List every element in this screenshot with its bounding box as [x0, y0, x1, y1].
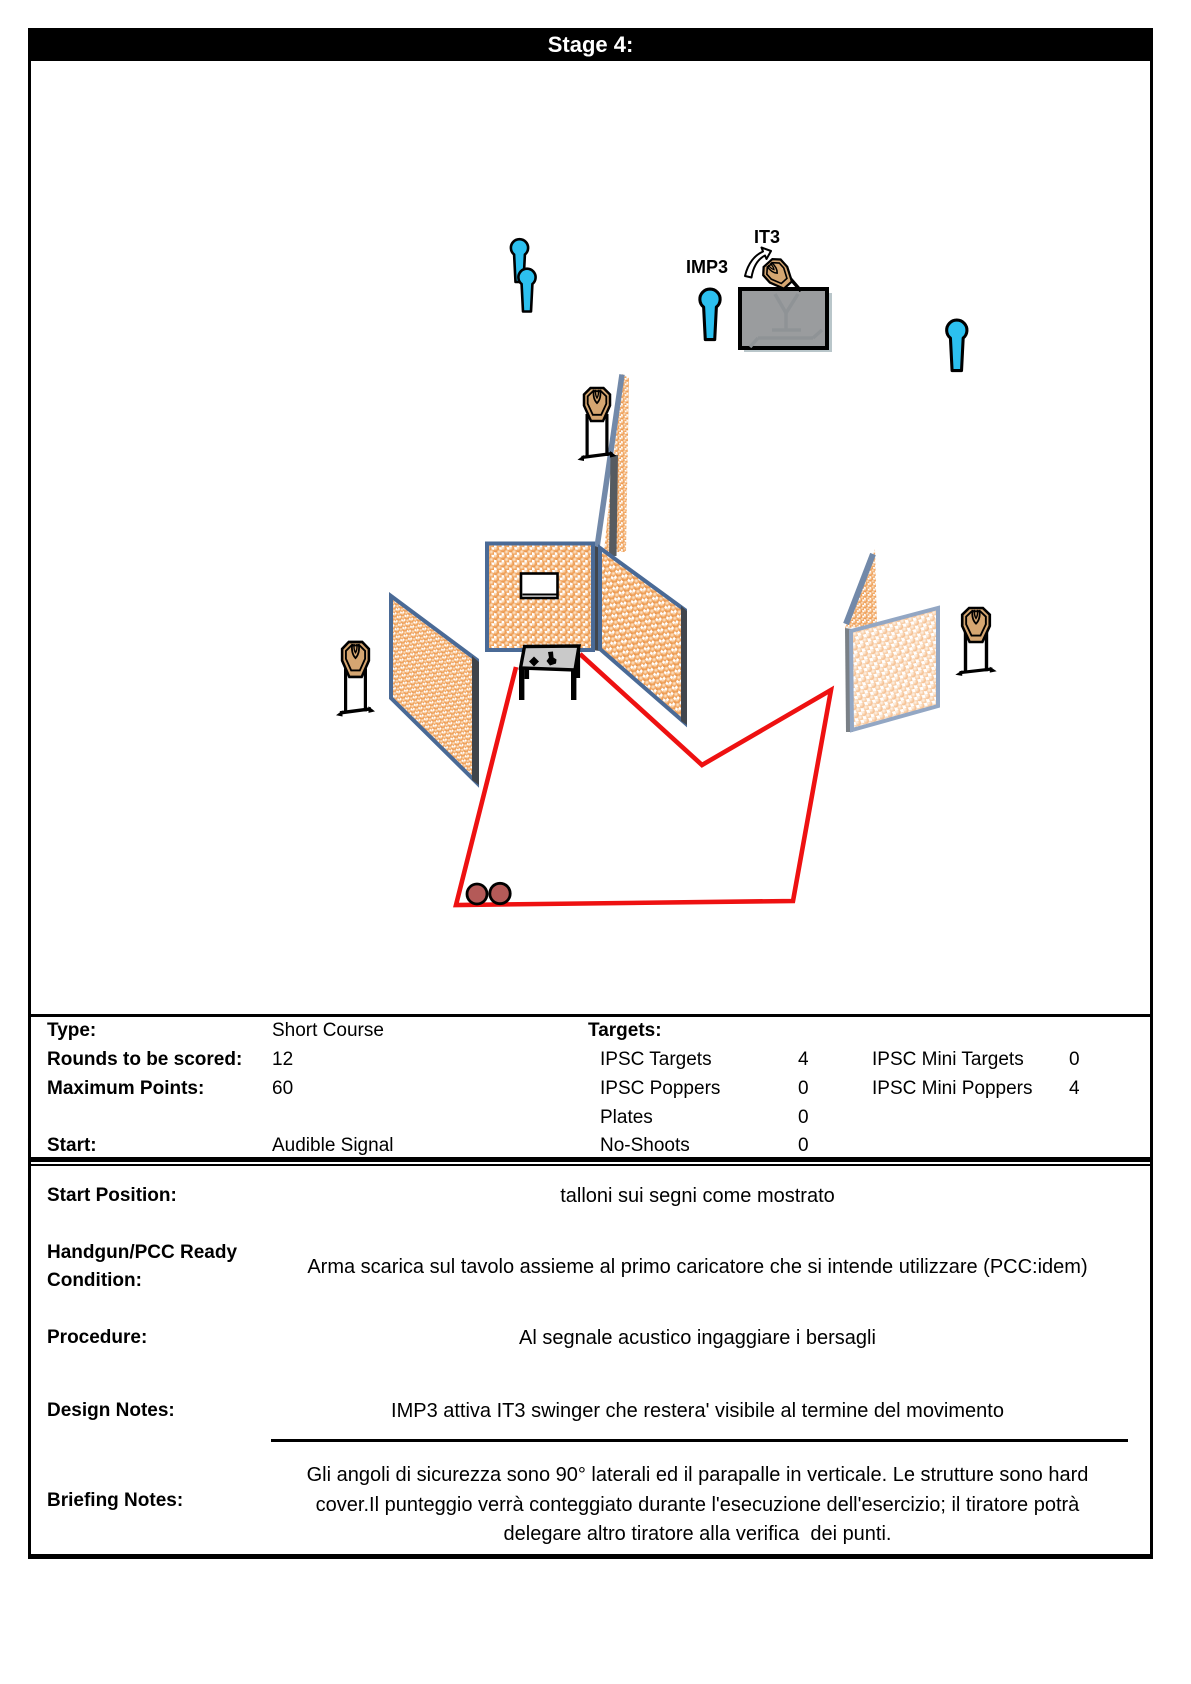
svg-text:IMP3: IMP3 — [686, 257, 728, 277]
svg-text:IT3: IT3 — [754, 227, 780, 247]
